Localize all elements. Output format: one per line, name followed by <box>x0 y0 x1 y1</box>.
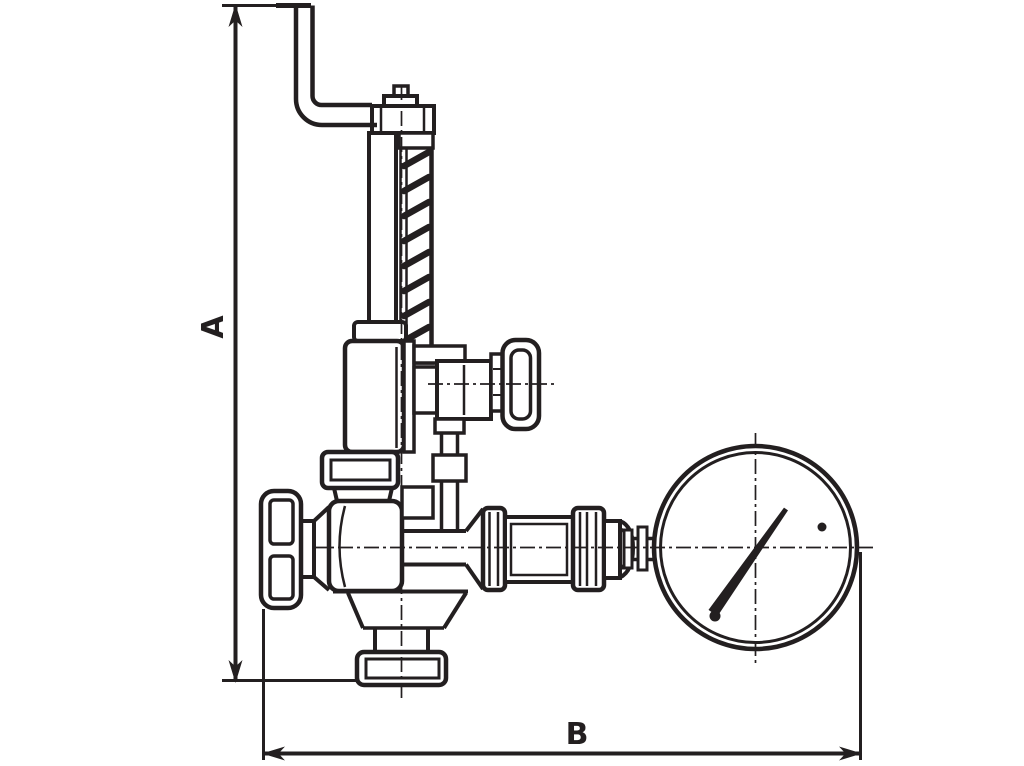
union-nut-2 <box>573 508 604 590</box>
valve-body <box>329 487 433 591</box>
union-nut-1 <box>483 508 505 590</box>
bonnet-top-plate <box>372 106 434 133</box>
dimension-a-label: A <box>196 315 231 339</box>
gland-flange <box>322 452 398 501</box>
pipe-barrel <box>505 517 573 582</box>
spindle-tube <box>369 133 396 323</box>
reducer <box>604 521 620 578</box>
lifting-lever <box>276 6 377 126</box>
gauge-stop-pin-dot <box>818 523 827 532</box>
gauge-needle-tail-dot <box>710 611 721 622</box>
outlet-flange-assembly <box>333 592 468 686</box>
spring-seat-top <box>399 133 433 148</box>
valve-assembly-technical-drawing: A B <box>0 0 1024 766</box>
adjusting-stem-cap <box>384 86 417 106</box>
safety-valve-assembly <box>261 6 857 686</box>
drawing-canvas: A B <box>0 0 1024 766</box>
shutoff-handwheel <box>261 491 329 608</box>
gauge-line-downpipe <box>433 419 466 530</box>
dimension-b-label: B <box>566 717 589 752</box>
